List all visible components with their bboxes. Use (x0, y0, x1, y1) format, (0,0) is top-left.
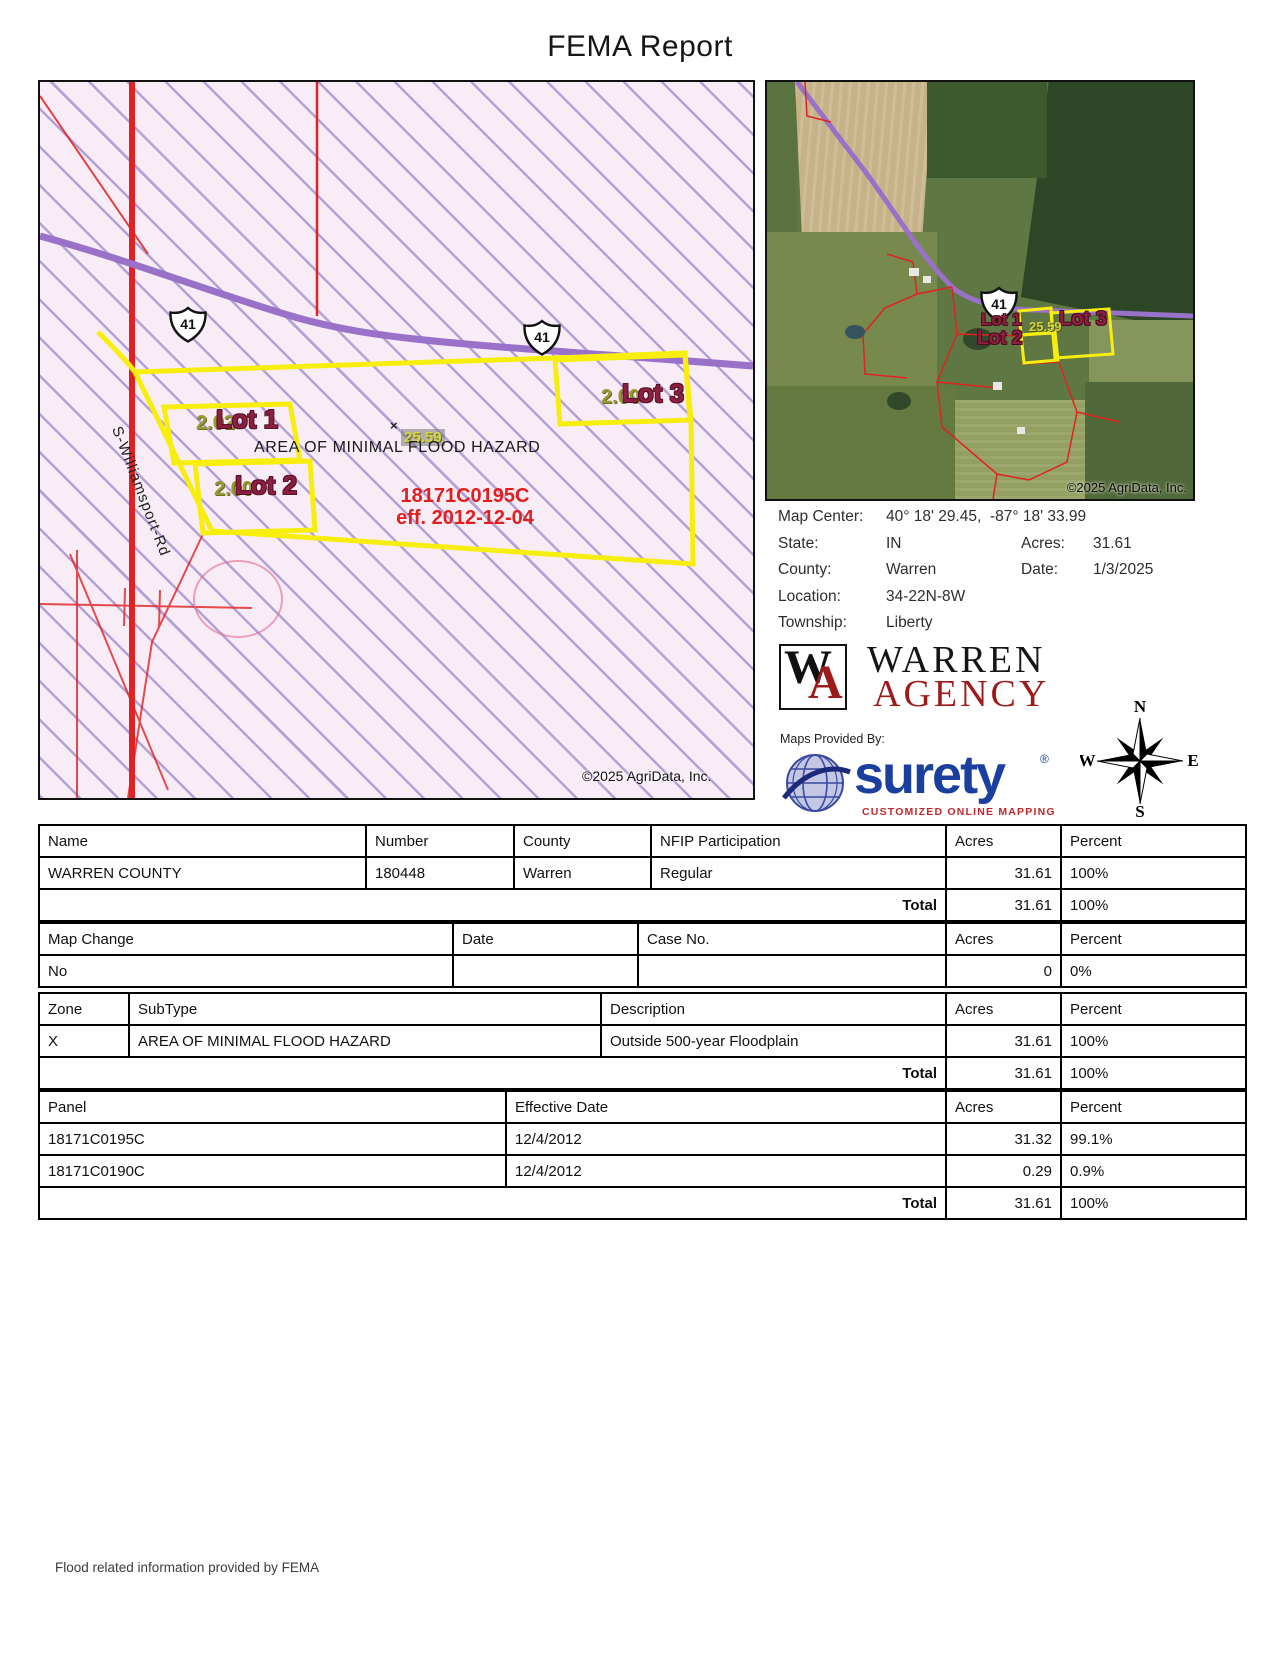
wa-monogram-a: A (808, 655, 843, 710)
col-header: Acres (946, 923, 1061, 955)
cell-percent: 100% (1061, 857, 1246, 889)
compass-rose-drawing: N E S W (1080, 698, 1200, 818)
aerial-acres-label: 25.59 (1029, 319, 1062, 334)
highway-shield-label: 41 (180, 316, 196, 332)
township-label: Township: (778, 614, 886, 632)
map-copyright: ©2025 AgriData, Inc. (582, 768, 711, 784)
flood-zone-note: AREA OF MINIMAL FLOOD HAZARD (254, 439, 540, 457)
col-header: Percent (1061, 825, 1246, 857)
col-header: Percent (1061, 1091, 1246, 1123)
total-percent: 100% (1061, 1057, 1246, 1089)
cell-percent: 0.9% (1061, 1155, 1246, 1187)
highway-shield-label: 41 (534, 329, 550, 345)
parcel-info-block: Map Center:40° 18' 29.45, -87° 18' 33.99… (778, 508, 1238, 641)
col-header: Zone (39, 993, 129, 1025)
col-header: Panel (39, 1091, 506, 1123)
cell-nfip: Regular (651, 857, 946, 889)
table-header-row: Name Number County NFIP Participation Ac… (39, 825, 1246, 857)
map-center-value: 40° 18' 29.45, -87° 18' 33.99 (886, 508, 1086, 525)
aerial-overlay-drawing: 41 (767, 82, 1193, 499)
lot3-label: Lot 3 (622, 378, 684, 409)
info-row-location: Location:34-22N-8W (778, 588, 1238, 615)
parcel-sketch-layer (40, 534, 282, 798)
cell-effective-date: 12/4/2012 (506, 1123, 946, 1155)
state-value: IN (886, 535, 902, 552)
col-header: Percent (1061, 993, 1246, 1025)
cell-date (453, 955, 638, 987)
total-acres: 31.61 (946, 1057, 1061, 1089)
lot2-label: Lot 2 (235, 470, 297, 501)
date-label: Date: (1021, 561, 1093, 579)
aerial-copyright: ©2025 AgriData, Inc. (1067, 480, 1187, 495)
cell-panel: 18171C0195C (39, 1123, 506, 1155)
aerial-lot3-label: Lot 3 (1059, 308, 1107, 331)
cell-acres: 31.61 (946, 857, 1061, 889)
total-label: Total (39, 889, 946, 921)
county-label: County: (778, 561, 886, 579)
col-header: Number (366, 825, 514, 857)
compass-s-label: S (1135, 802, 1144, 818)
highway-41-line (797, 82, 1193, 316)
total-percent: 100% (1061, 1187, 1246, 1219)
col-header: Acres (946, 993, 1061, 1025)
cell-acres: 0 (946, 955, 1061, 987)
cell-map-change: No (39, 955, 453, 987)
parcel-lines-layer (805, 82, 1119, 499)
aerial-lot1-label: Lot 1 (981, 310, 1022, 330)
col-header: Name (39, 825, 366, 857)
table-row: 18171C0190C 12/4/2012 0.29 0.9% (39, 1155, 1246, 1187)
cell-percent: 99.1% (1061, 1123, 1246, 1155)
col-header: NFIP Participation (651, 825, 946, 857)
cell-acres: 31.61 (946, 1025, 1061, 1057)
total-percent: 100% (1061, 889, 1246, 921)
table-row: 18171C0195C 12/4/2012 31.32 99.1% (39, 1123, 1246, 1155)
flood-map-panel: 41 41 2.02 Lot 1 2.00 Lot 2 2.00 Lot 3 ×… (38, 80, 755, 800)
panel-table: Panel Effective Date Acres Percent 18171… (38, 1090, 1247, 1220)
cell-case-no (638, 955, 946, 987)
zone-table: Zone SubType Description Acres Percent X… (38, 992, 1247, 1090)
map-change-table: Map Change Date Case No. Acres Percent N… (38, 922, 1247, 988)
lot1-label: Lot 1 (216, 404, 278, 435)
surety-wordmark: surety (854, 744, 1004, 806)
table-total-row: Total 31.61 100% (39, 1187, 1246, 1219)
table-header-row: Map Change Date Case No. Acres Percent (39, 923, 1246, 955)
cell-description: Outside 500-year Floodplain (601, 1025, 946, 1057)
compass-w-label: W (1080, 751, 1096, 770)
state-label: State: (778, 535, 886, 553)
compass-rose: N E S W (1080, 698, 1200, 818)
col-header: Percent (1061, 923, 1246, 955)
table-header-row: Zone SubType Description Acres Percent (39, 993, 1246, 1025)
col-header: Acres (946, 1091, 1061, 1123)
table-row: No 0 0% (39, 955, 1246, 987)
acres-value: 31.61 (1093, 535, 1132, 552)
surety-globe-icon (782, 750, 852, 820)
fema-panel-number: 18171C0195C (370, 485, 560, 508)
cell-name: WARREN COUNTY (39, 857, 366, 889)
map-center-label: Map Center: (778, 508, 886, 526)
highway-shield: 41 (170, 308, 205, 342)
location-label: Location: (778, 588, 886, 606)
county-value: Warren (886, 561, 936, 578)
cell-panel: 18171C0190C (39, 1155, 506, 1187)
cell-county: Warren (514, 857, 651, 889)
township-value: Liberty (886, 614, 933, 631)
compass-major-points (1097, 718, 1183, 804)
wa-monogram-box: W A (779, 644, 847, 710)
col-header: SubType (129, 993, 601, 1025)
total-label: Total (39, 1187, 946, 1219)
table-header-row: Panel Effective Date Acres Percent (39, 1091, 1246, 1123)
cell-acres: 31.32 (946, 1123, 1061, 1155)
table-total-row: Total 31.61 100% (39, 889, 1246, 921)
col-header: Effective Date (506, 1091, 946, 1123)
nfip-table: Name Number County NFIP Participation Ac… (38, 824, 1247, 922)
table-row: WARREN COUNTY 180448 Warren Regular 31.6… (39, 857, 1246, 889)
pond (845, 325, 865, 339)
parcel-x-mark: × (390, 418, 398, 433)
compass-e-label: E (1187, 751, 1198, 770)
surety-tagline: CUSTOMIZED ONLINE MAPPING (862, 806, 1056, 818)
col-header: Description (601, 993, 946, 1025)
aerial-lot2-label: Lot 2 (977, 328, 1022, 350)
info-row-state: State:IN Acres:31.61 (778, 535, 1238, 562)
page-title: FEMA Report (0, 30, 1280, 64)
location-value: 34-22N-8W (886, 588, 965, 605)
info-row-county: County:Warren Date:1/3/2025 (778, 561, 1238, 588)
cell-subtype: AREA OF MINIMAL FLOOD HAZARD (129, 1025, 601, 1057)
col-header: Map Change (39, 923, 453, 955)
agency-name-bottom: AGENCY (873, 672, 1049, 716)
cell-percent: 100% (1061, 1025, 1246, 1057)
fema-panel-effective-date: eff. 2012-12-04 (370, 507, 560, 530)
cell-acres: 0.29 (946, 1155, 1061, 1187)
info-row-township: Township:Liberty (778, 614, 1238, 641)
surety-logo: surety ® CUSTOMIZED ONLINE MAPPING (782, 750, 852, 825)
acres-label: Acres: (1021, 535, 1093, 553)
table-row: X AREA OF MINIMAL FLOOD HAZARD Outside 5… (39, 1025, 1246, 1057)
total-label: Total (39, 1057, 946, 1089)
cell-number: 180448 (366, 857, 514, 889)
total-acres: 31.61 (946, 1187, 1061, 1219)
compass-n-label: N (1134, 698, 1147, 716)
highway-41-line (40, 236, 753, 366)
col-header: Date (453, 923, 638, 955)
cell-effective-date: 12/4/2012 (506, 1155, 946, 1187)
col-header: Case No. (638, 923, 946, 955)
footer-note: Flood related information provided by FE… (55, 1560, 319, 1575)
total-acres: 31.61 (946, 889, 1061, 921)
cell-percent: 0% (1061, 955, 1246, 987)
cell-zone: X (39, 1025, 129, 1057)
col-header: Acres (946, 825, 1061, 857)
info-row-map-center: Map Center:40° 18' 29.45, -87° 18' 33.99 (778, 508, 1238, 535)
registered-mark: ® (1040, 752, 1049, 766)
aerial-photo-panel: 41 Lot 1 Lot 2 Lot 3 25.59 ©2025 AgriDat… (765, 80, 1195, 501)
table-total-row: Total 31.61 100% (39, 1057, 1246, 1089)
fema-report-page: FEMA Report (0, 0, 1280, 1656)
date-value: 1/3/2025 (1093, 561, 1153, 578)
col-header: County (514, 825, 651, 857)
